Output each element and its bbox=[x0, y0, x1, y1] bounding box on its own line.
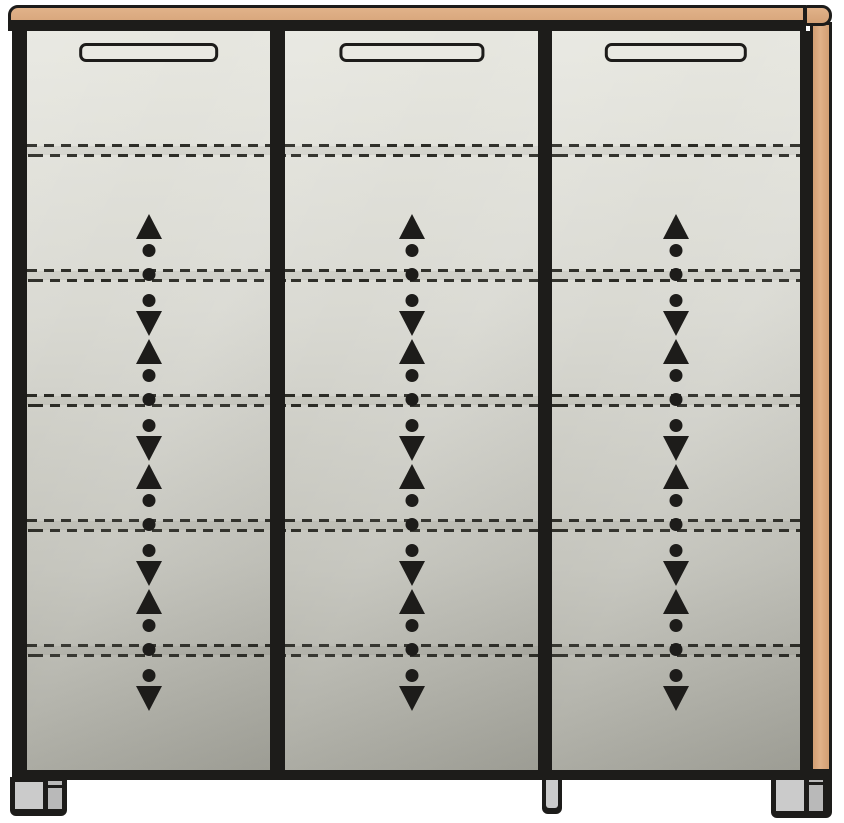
arrow-down-icon bbox=[663, 311, 689, 336]
foot-pad-back-top bbox=[48, 781, 62, 785]
top-board-right-cap bbox=[804, 5, 832, 26]
adjustment-dot-icon bbox=[405, 669, 418, 682]
adjustment-dot-icon bbox=[405, 294, 418, 307]
adjustment-dot-icon bbox=[142, 669, 155, 682]
right-side-panel bbox=[810, 22, 832, 772]
adjustment-dot-icon bbox=[142, 369, 155, 382]
adjustment-dot-icon bbox=[670, 244, 683, 257]
arrow-up-icon bbox=[663, 464, 689, 489]
door-center[interactable] bbox=[285, 31, 538, 770]
adjustment-dot-icon bbox=[142, 518, 155, 531]
foot-right bbox=[771, 774, 832, 818]
arrow-down-icon bbox=[136, 311, 162, 336]
arrow-up-icon bbox=[399, 589, 425, 614]
adjustment-dot-icon bbox=[405, 244, 418, 257]
shelf-position-line bbox=[27, 144, 270, 147]
arrow-down-icon bbox=[136, 561, 162, 586]
adjustment-dot-icon bbox=[142, 393, 155, 406]
door-handle-icon bbox=[79, 43, 219, 62]
foot-pad-front bbox=[546, 779, 558, 808]
arrow-up-icon bbox=[663, 589, 689, 614]
shelf-position-line bbox=[552, 144, 800, 147]
arrow-down-icon bbox=[663, 436, 689, 461]
adjustment-dot-icon bbox=[405, 393, 418, 406]
cabinet-top-board bbox=[8, 5, 806, 31]
adjustment-dot-icon bbox=[142, 244, 155, 257]
adjustment-dot-icon bbox=[670, 294, 683, 307]
adjustment-dot-icon bbox=[405, 369, 418, 382]
top-board-underside bbox=[8, 20, 806, 31]
adjustment-dot-icon bbox=[142, 643, 155, 656]
arrow-up-icon bbox=[399, 214, 425, 239]
arrow-down-icon bbox=[399, 311, 425, 336]
arrow-up-icon bbox=[136, 339, 162, 364]
arrow-down-icon bbox=[136, 686, 162, 711]
foot-center bbox=[542, 777, 562, 814]
arrow-up-icon bbox=[136, 464, 162, 489]
adjustment-dot-icon bbox=[142, 619, 155, 632]
shelf-position-line bbox=[285, 154, 538, 157]
adjustment-dot-icon bbox=[405, 643, 418, 656]
adjustment-dot-icon bbox=[670, 669, 683, 682]
foot-pad-front bbox=[15, 782, 43, 809]
cabinet-diagram bbox=[0, 0, 844, 823]
adjustment-dot-icon bbox=[142, 544, 155, 557]
arrow-down-icon bbox=[663, 686, 689, 711]
adjustment-dot-icon bbox=[405, 419, 418, 432]
arrow-down-icon bbox=[136, 436, 162, 461]
cabinet-body bbox=[12, 31, 813, 780]
shelf-position-line bbox=[27, 154, 270, 157]
shelf-position-line bbox=[552, 154, 800, 157]
arrow-up-icon bbox=[136, 214, 162, 239]
adjustment-dot-icon bbox=[405, 518, 418, 531]
arrow-down-icon bbox=[399, 686, 425, 711]
door-left[interactable] bbox=[27, 31, 270, 770]
shelf-position-line bbox=[285, 144, 538, 147]
adjustment-dot-icon bbox=[142, 294, 155, 307]
door-handle-icon bbox=[605, 43, 747, 62]
arrow-down-icon bbox=[399, 436, 425, 461]
adjustment-dot-icon bbox=[142, 268, 155, 281]
adjustment-dot-icon bbox=[670, 419, 683, 432]
arrow-up-icon bbox=[136, 589, 162, 614]
arrow-up-icon bbox=[663, 214, 689, 239]
door-right[interactable] bbox=[552, 31, 800, 770]
foot-pad-front bbox=[776, 779, 804, 811]
arrow-down-icon bbox=[663, 561, 689, 586]
adjustment-dot-icon bbox=[405, 619, 418, 632]
cabinet-base-edge bbox=[12, 770, 832, 780]
foot-pad-back bbox=[48, 788, 62, 809]
adjustment-dot-icon bbox=[670, 643, 683, 656]
arrow-down-icon bbox=[399, 561, 425, 586]
adjustment-dot-icon bbox=[142, 494, 155, 507]
arrow-up-icon bbox=[399, 464, 425, 489]
adjustment-dot-icon bbox=[670, 369, 683, 382]
foot-left bbox=[10, 777, 67, 816]
adjustment-dot-icon bbox=[405, 544, 418, 557]
adjustment-dot-icon bbox=[670, 268, 683, 281]
adjustment-dot-icon bbox=[670, 494, 683, 507]
foot-pad-back bbox=[809, 785, 823, 811]
adjustment-dot-icon bbox=[670, 544, 683, 557]
adjustment-dot-icon bbox=[405, 268, 418, 281]
arrow-up-icon bbox=[399, 339, 425, 364]
adjustment-dot-icon bbox=[670, 619, 683, 632]
door-handle-icon bbox=[339, 43, 484, 62]
arrow-up-icon bbox=[663, 339, 689, 364]
adjustment-dot-icon bbox=[670, 393, 683, 406]
adjustment-dot-icon bbox=[670, 518, 683, 531]
adjustment-dot-icon bbox=[405, 494, 418, 507]
adjustment-dot-icon bbox=[142, 419, 155, 432]
